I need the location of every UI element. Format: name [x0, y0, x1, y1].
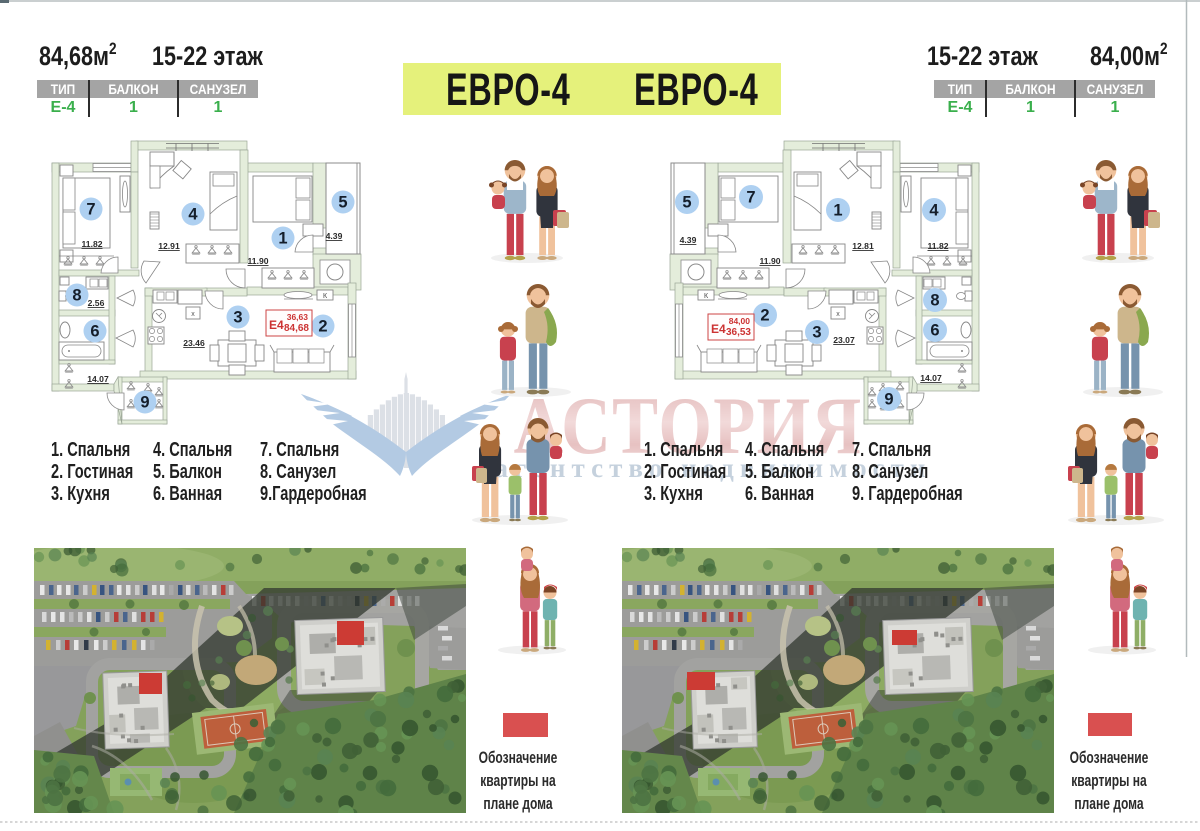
svg-text:1: 1	[278, 230, 287, 248]
svg-text:4: 4	[188, 206, 198, 224]
svg-text:11.82: 11.82	[927, 241, 948, 251]
svg-text:6: 6	[930, 322, 939, 340]
svg-text:14.07: 14.07	[920, 373, 942, 383]
svg-text:7: 7	[86, 201, 95, 219]
svg-text:2.56: 2.56	[88, 298, 105, 308]
svg-text:8: 8	[930, 292, 939, 310]
svg-text:2: 2	[760, 307, 769, 325]
svg-text:6: 6	[90, 323, 99, 341]
svg-text:3: 3	[233, 309, 242, 327]
svg-text:11.90: 11.90	[759, 256, 780, 266]
svg-text:4.39: 4.39	[680, 235, 697, 245]
svg-text:x: x	[191, 311, 195, 318]
svg-text:Е4: Е4	[711, 322, 726, 336]
svg-text:23.46: 23.46	[183, 338, 205, 348]
svg-text:Е4: Е4	[269, 318, 284, 332]
svg-text:5: 5	[682, 194, 691, 212]
svg-text:5: 5	[338, 194, 347, 212]
svg-text:84,00: 84,00	[729, 316, 751, 326]
svg-text:11.90: 11.90	[247, 256, 268, 266]
svg-text:9: 9	[140, 394, 149, 412]
svg-text:9: 9	[884, 391, 893, 409]
svg-text:8: 8	[72, 287, 81, 305]
svg-text:2: 2	[318, 318, 327, 336]
svg-text:12.81: 12.81	[852, 241, 874, 251]
svg-text:4: 4	[929, 202, 939, 220]
svg-text:12.91: 12.91	[158, 241, 180, 251]
svg-text:23.07: 23.07	[833, 335, 855, 345]
svg-text:3: 3	[812, 324, 821, 342]
svg-text:14.07: 14.07	[87, 374, 109, 384]
svg-text:4.39: 4.39	[326, 231, 343, 241]
svg-text:11.82: 11.82	[81, 239, 102, 249]
svg-text:84,68: 84,68	[284, 323, 309, 334]
svg-text:36,53: 36,53	[726, 327, 751, 338]
svg-text:36,63: 36,63	[287, 312, 309, 322]
svg-text:1: 1	[833, 202, 842, 220]
svg-text:7: 7	[746, 189, 755, 207]
